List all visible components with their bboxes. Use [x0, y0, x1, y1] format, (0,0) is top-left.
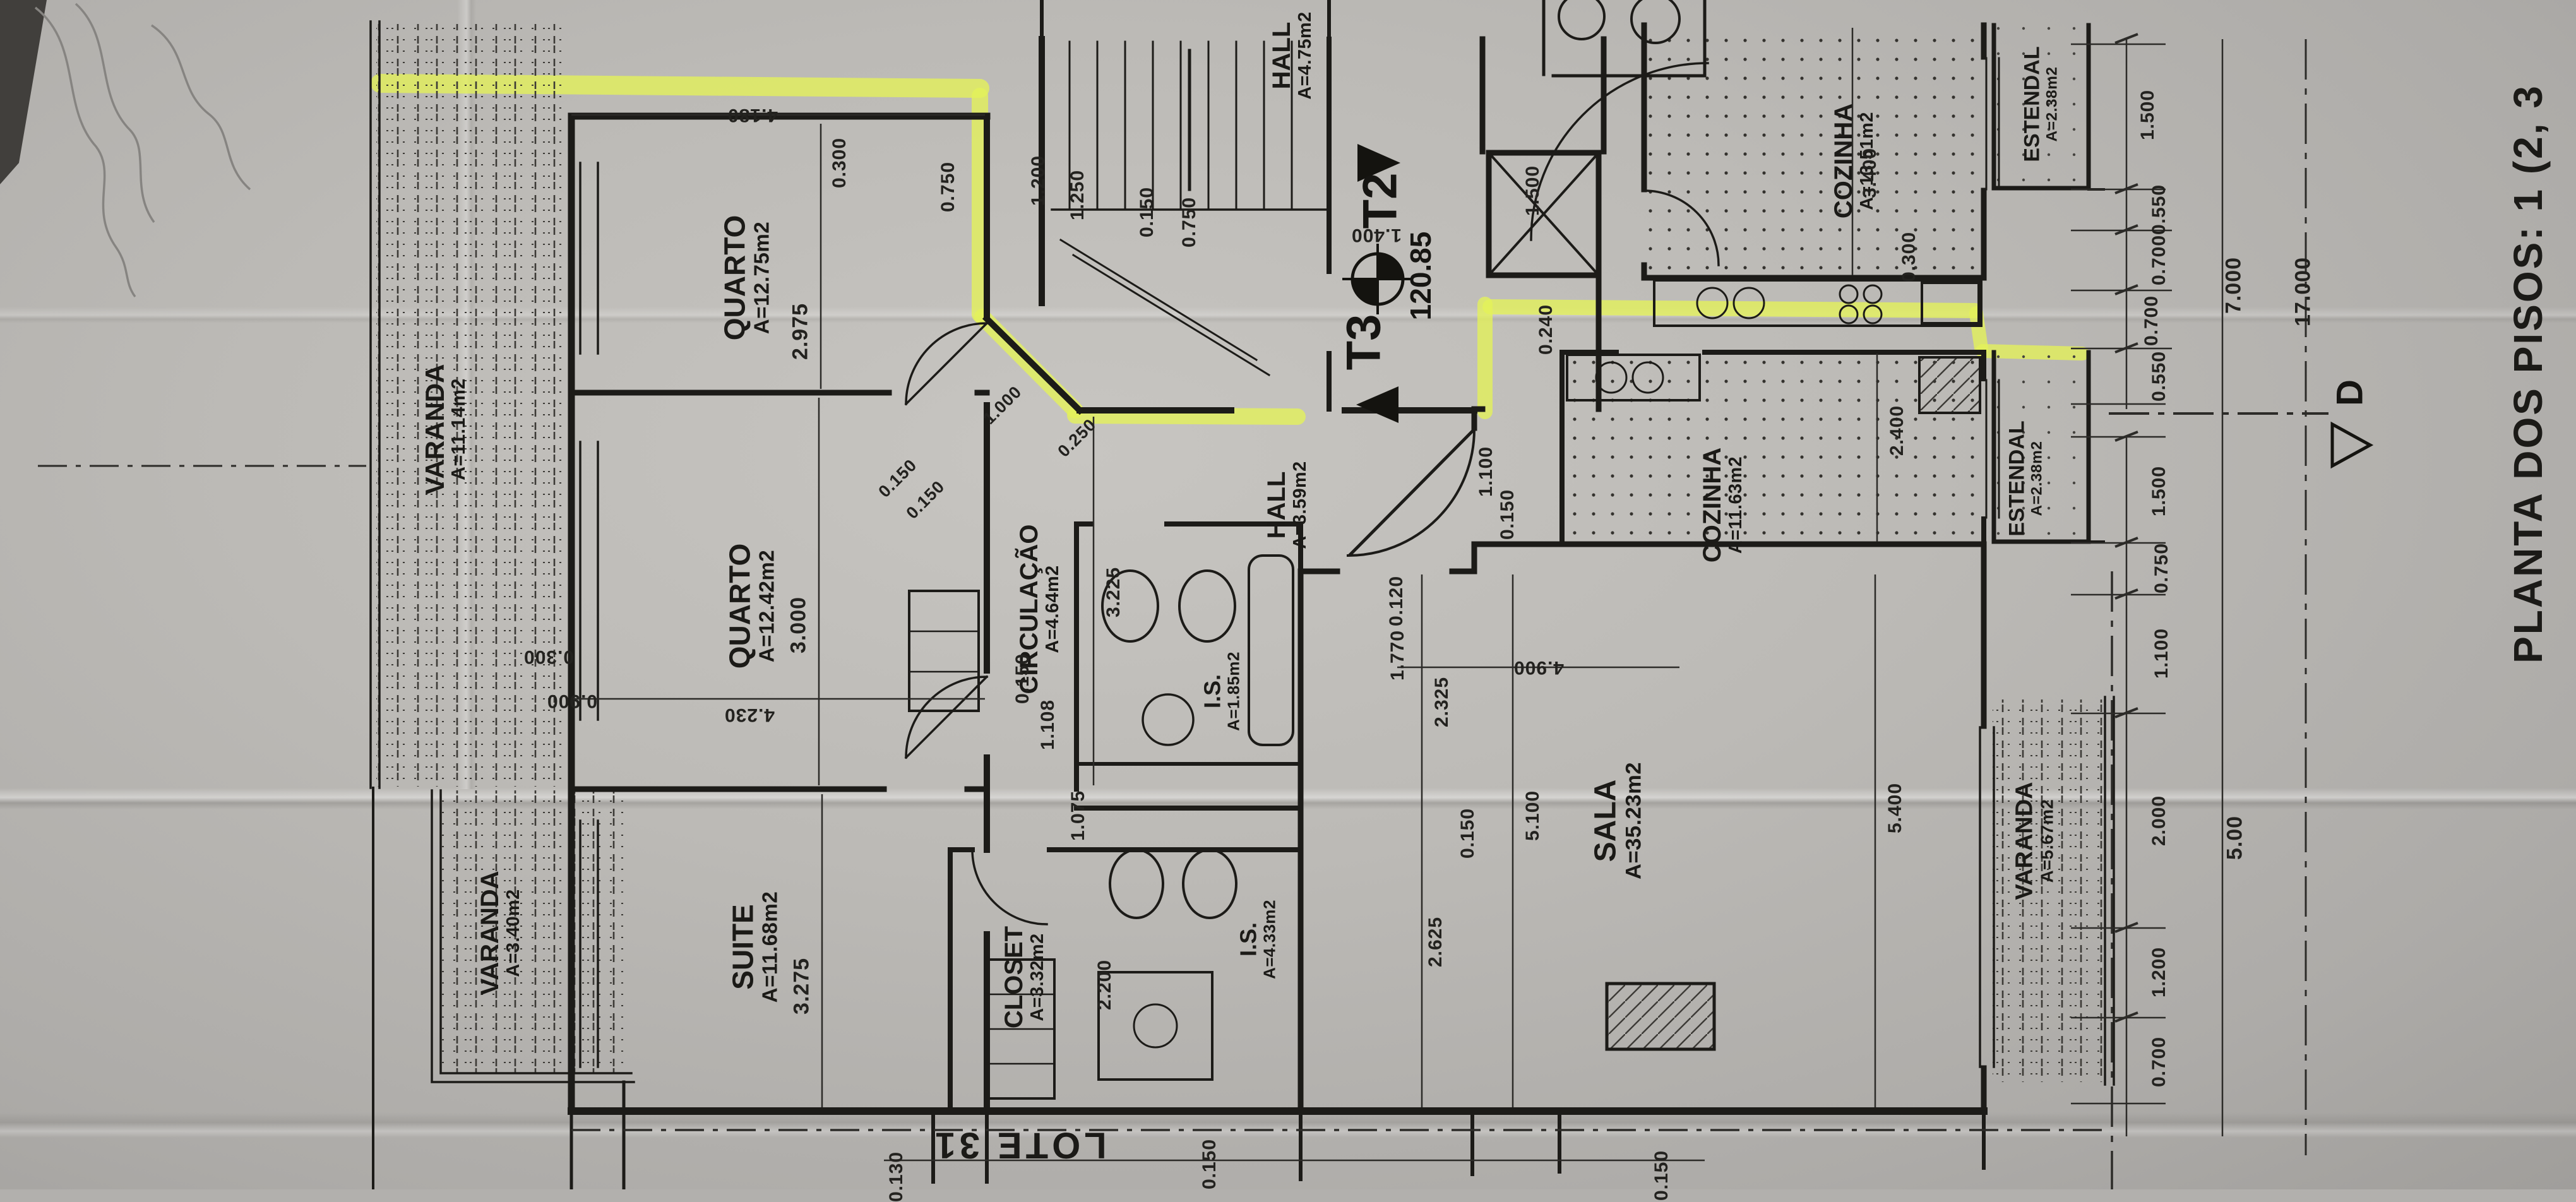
dim: 5.100 [1522, 790, 1544, 841]
dim: 1.075 [1068, 790, 1089, 841]
dim: 1.250 [1067, 170, 1088, 220]
dim: 0.150 [1199, 1139, 1220, 1189]
dim: 1.500 [2149, 466, 2170, 516]
unit-t3-label: T3 [1337, 314, 1392, 371]
room-label-hall-top: HALLA=4.75m2 [1268, 11, 1315, 99]
dim: 0.550 [2149, 351, 2170, 402]
dim: 1.108 [1037, 699, 1059, 750]
dim: 3.000 [787, 597, 811, 653]
dim: 0.130 [886, 1151, 907, 1202]
dim: 3.275 [790, 958, 814, 1015]
dim: 1.200 [2149, 947, 2170, 997]
dim: 0.300 [829, 138, 850, 188]
room-label-quarto-1: QUARTOA=12.75m2 [719, 215, 773, 341]
dim: 0.150 [1457, 808, 1479, 859]
lot-label: LOTE 31 [931, 1124, 1106, 1167]
label-layer: PLANTA DOS PISOS: 1 (2, 3 LOTE 31 VARAND… [0, 0, 2576, 1189]
dim: 3.225 [1103, 567, 1124, 617]
room-label-estendal-top: ESTENDALA=2.38m2 [2020, 46, 2060, 162]
room-label-hall: HALLA=3.59m2 [1263, 461, 1310, 549]
dim: 0.150 [902, 477, 948, 523]
dim: 1.000 [979, 382, 1025, 428]
dim: 0.550 [2149, 184, 2170, 235]
dim: 2.975 [789, 303, 813, 360]
dim: 17.000 [2291, 257, 2316, 326]
dim: 1.100 [1476, 446, 1497, 497]
room-label-is-1: I.S.A=1.85m2 [1201, 652, 1243, 731]
dim: 0.900 [547, 690, 597, 711]
dim: 0.700 [2149, 1037, 2170, 1087]
sheet-title: PLANTA DOS PISOS: 1 (2, 3 [2505, 84, 2551, 663]
unit-t2-label: T2 [1353, 173, 1408, 229]
dim: 0.150 [1136, 187, 1158, 237]
dim: 0.150 [1012, 653, 1034, 704]
dim: 4.230 [724, 704, 775, 725]
dim: 1.500 [2137, 90, 2159, 140]
dim: 0.750 [1179, 197, 1200, 247]
dim: 5.00 [2223, 816, 2248, 860]
dim: 0.700 [2141, 295, 2162, 346]
dim: 3.400 [1859, 148, 1881, 198]
section-d-label: D [2329, 379, 2371, 406]
room-label-varanda-top-left: VARANDAA=11.14m2 [420, 364, 470, 495]
dim: 0.120 [1386, 576, 1407, 626]
dim: 2.200 [1094, 960, 1116, 1010]
dim: 0.150 [1497, 489, 1518, 540]
room-label-is-2: I.S.A=4.33m2 [1237, 900, 1279, 979]
room-label-varanda-bottom-left: VARANDAA=3.40m2 [477, 871, 523, 995]
dim: 1.770 [1387, 630, 1409, 681]
dim: 0.300 [1899, 232, 1920, 282]
dim: 0.300 [523, 646, 574, 667]
room-label-closet: CLOSETA=3.32m2 [1001, 926, 1047, 1028]
dim: 1.400 [1351, 224, 1402, 246]
room-label-cozinha-bottom: COZINHAA=11.63m2 [1699, 448, 1746, 562]
dim: 0.240 [1535, 304, 1557, 355]
dim: 5.400 [1885, 783, 1906, 833]
dim: 4.900 [1513, 657, 1564, 678]
dim: 4.180 [727, 104, 778, 126]
dim: 7.000 [2222, 257, 2246, 314]
dim: 0.750 [2151, 543, 2173, 593]
room-label-sala: SALAA=35.23m2 [1589, 762, 1645, 879]
room-label-estendal-bottom: ESTENDALA=2.38m2 [2005, 420, 2045, 536]
dim: 2.625 [1425, 917, 1446, 967]
dim: 0.700 [2149, 235, 2170, 285]
elevation-label: 120.85 [1404, 232, 1438, 321]
dim: 1.500 [1522, 165, 1544, 216]
dim: 2.000 [2149, 795, 2170, 846]
room-label-varanda-right: VARANDAA=5.67m2 [2012, 782, 2057, 900]
dim: 0.150 [874, 455, 921, 501]
dim: 1.200 [1028, 155, 1049, 206]
dim: 0.250 [1054, 415, 1100, 461]
dim: 2.325 [1431, 677, 1453, 727]
dim: 2.400 [1887, 405, 1908, 456]
dim: 1.100 [2151, 628, 2173, 679]
dim: 0.750 [938, 162, 959, 212]
room-label-quarto-2: QUARTOA=12.42m2 [724, 544, 778, 669]
dim: 0.150 [1651, 1150, 1673, 1201]
room-label-suite: SUITEA=11.68m2 [727, 891, 781, 1003]
